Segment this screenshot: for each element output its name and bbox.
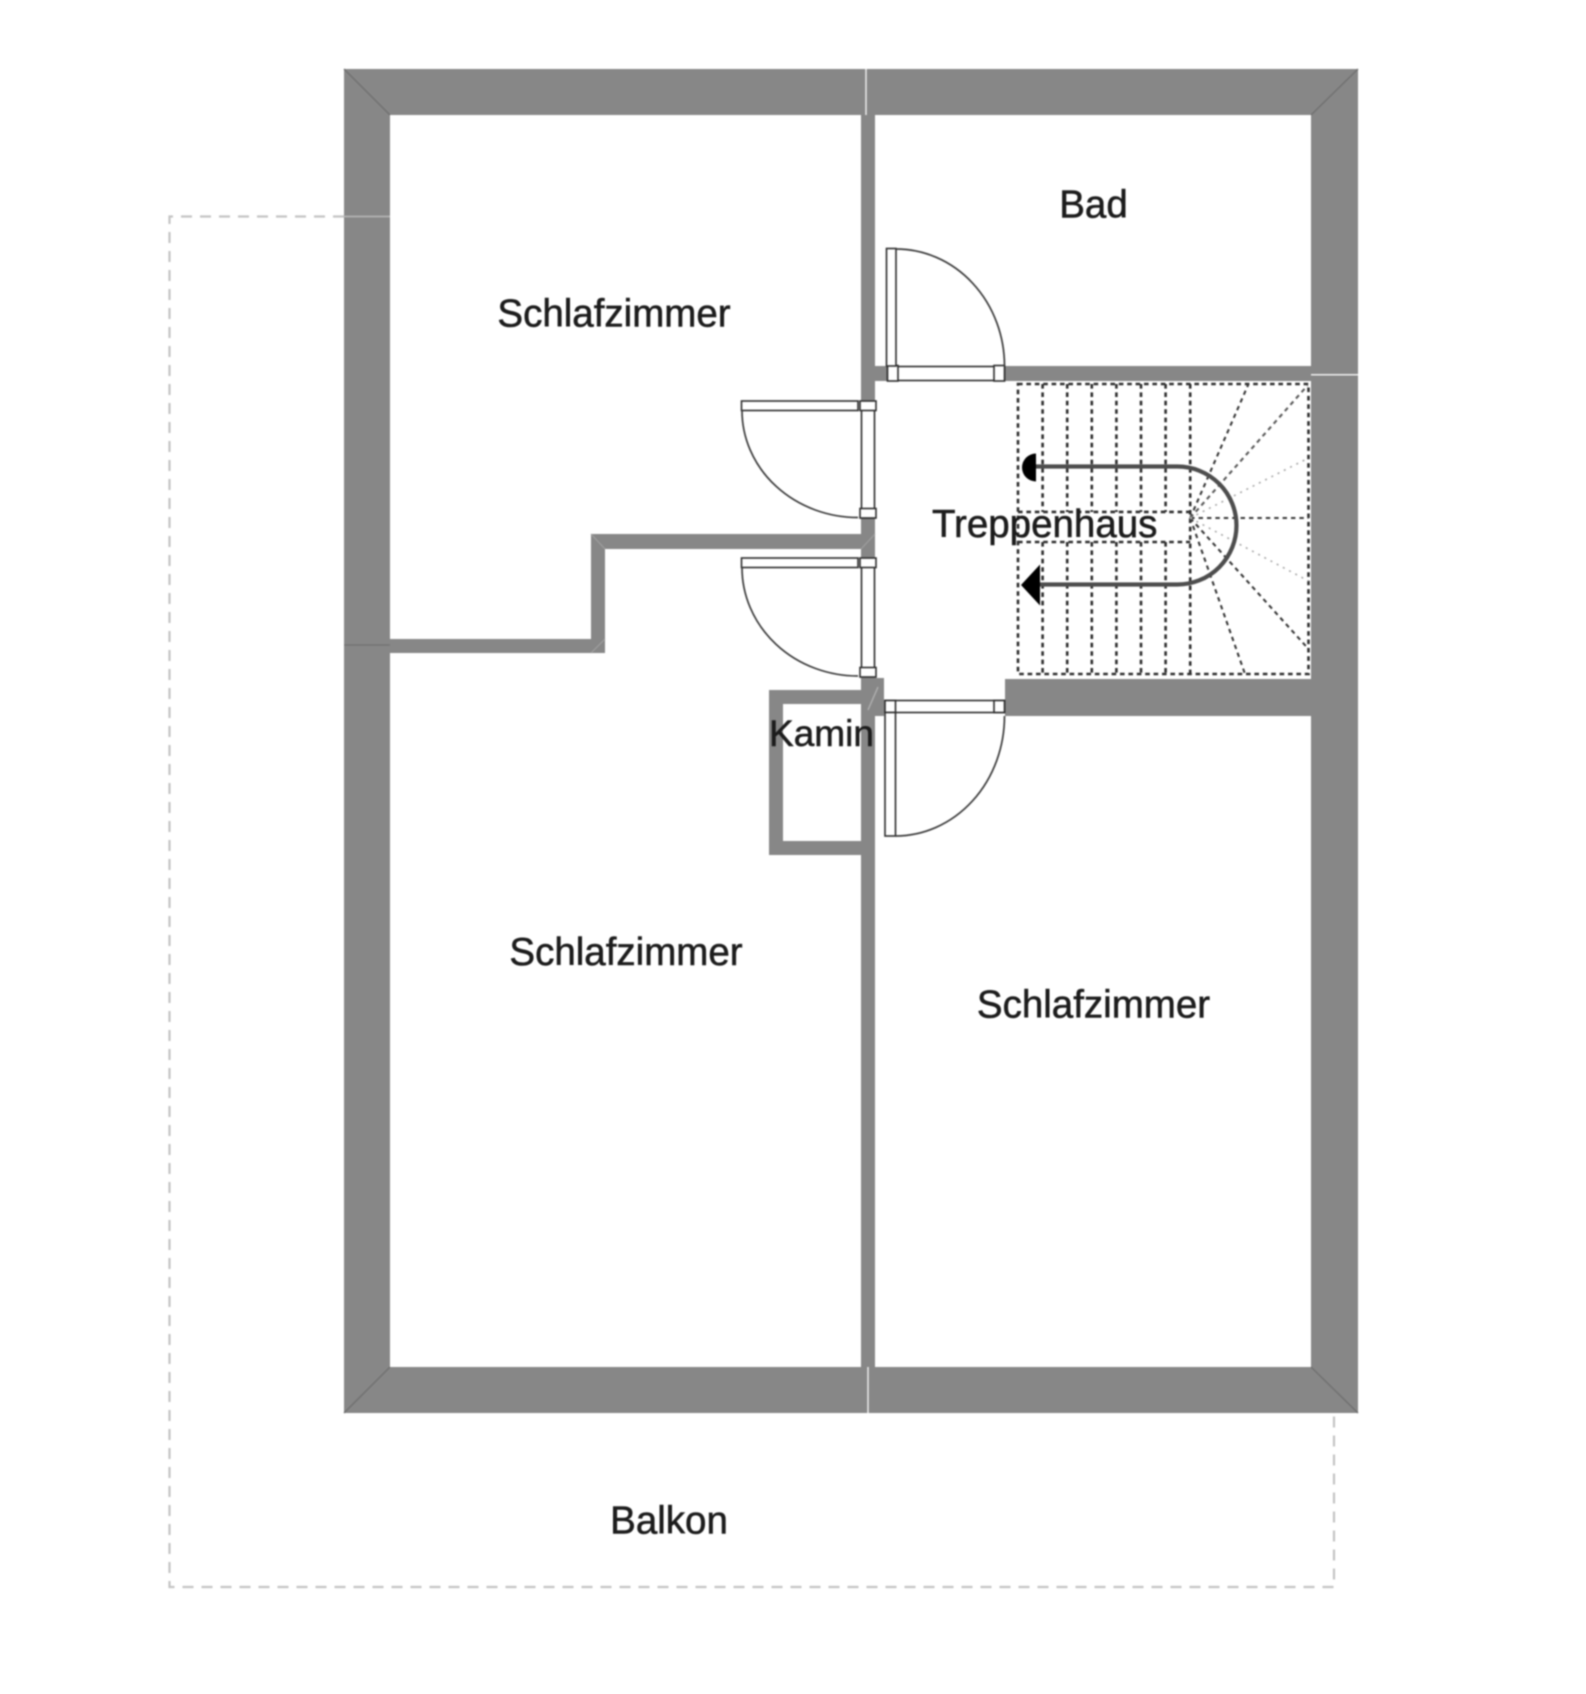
- svg-text:Schlafzimmer: Schlafzimmer: [977, 983, 1210, 1026]
- svg-text:Balkon: Balkon: [610, 1500, 728, 1543]
- svg-text:Treppenhaus: Treppenhaus: [932, 503, 1157, 546]
- svg-text:Schlafzimmer: Schlafzimmer: [509, 931, 742, 974]
- svg-text:Bad: Bad: [1059, 184, 1128, 227]
- svg-text:Kamin: Kamin: [769, 713, 874, 754]
- svg-text:Schlafzimmer: Schlafzimmer: [497, 293, 730, 336]
